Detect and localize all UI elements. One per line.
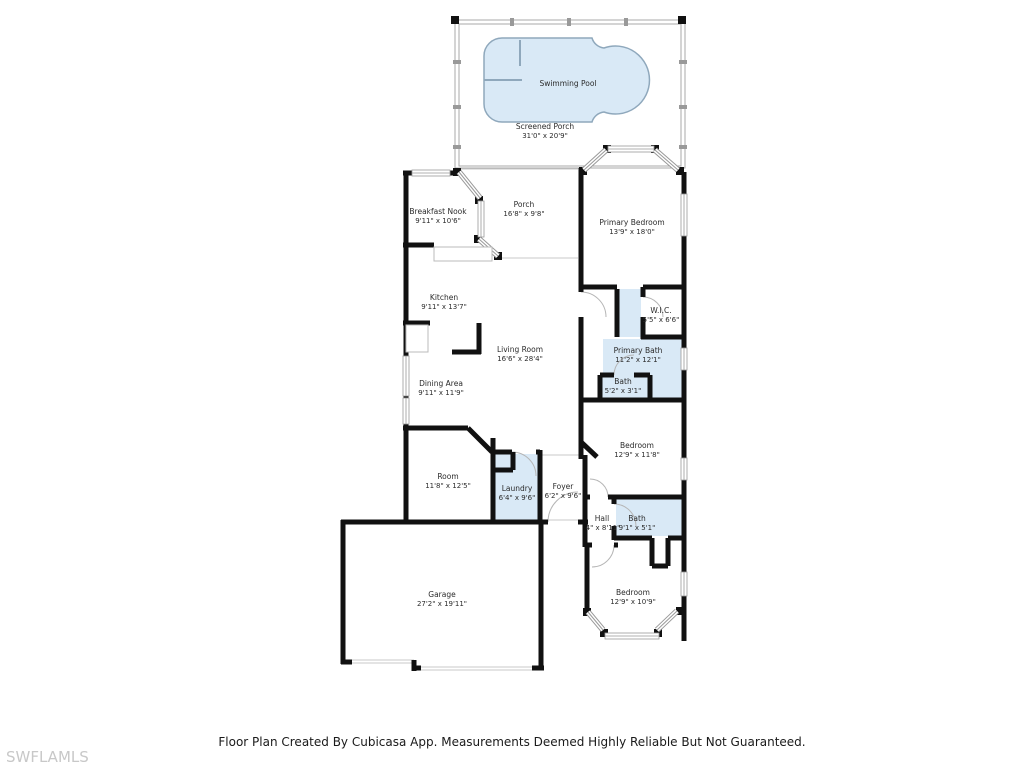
room-dims-breakfast-nook: 9'11" x 10'6" bbox=[415, 217, 461, 225]
open-boundaries bbox=[352, 169, 583, 670]
footer-disclaimer: Floor Plan Created By Cubicasa App. Meas… bbox=[218, 735, 805, 749]
room-dims-primary-bedroom: 13'9" x 18'0" bbox=[609, 228, 655, 236]
floor-plan-page: Swimming Pool Screened Porch 31'0" x 20'… bbox=[0, 0, 1024, 768]
room-label-kitchen: Kitchen bbox=[430, 293, 458, 302]
room-dims-dining-area: 9'11" x 11'9" bbox=[418, 389, 464, 397]
room-dims-porch: 16'8" x 9'8" bbox=[503, 210, 544, 218]
room-label-swimming-pool: Swimming Pool bbox=[539, 79, 596, 88]
room-dims-wic: 5'5" x 6'6" bbox=[643, 316, 680, 324]
room-label-hall-bath: Bath bbox=[628, 514, 646, 523]
room-label-dining-area: Dining Area bbox=[419, 379, 463, 388]
room-dims-bedroom-mid: 12'9" x 11'8" bbox=[614, 451, 660, 459]
room-label-garage: Garage bbox=[428, 590, 456, 599]
room-label-wic: W.I.C. bbox=[650, 306, 671, 315]
room-dims-foyer: 6'2" x 9'6" bbox=[545, 492, 582, 500]
room-label-bath-small: Bath bbox=[614, 377, 632, 386]
room-dims-garage: 27'2" x 19'11" bbox=[417, 600, 467, 608]
room-label-foyer: Foyer bbox=[553, 482, 575, 491]
room-dims-hall-bath: 9'1" x 5'1" bbox=[619, 524, 656, 532]
room-label-porch: Porch bbox=[514, 200, 535, 209]
floor-plan-svg: Swimming Pool Screened Porch 31'0" x 20'… bbox=[0, 0, 1024, 768]
room-label-screened-porch: Screened Porch bbox=[516, 122, 574, 131]
room-dims-screened-porch: 31'0" x 20'9" bbox=[522, 132, 568, 140]
room-dims-bedroom-bottom: 12'9" x 10'9" bbox=[610, 598, 656, 606]
room-label-bedroom-bottom: Bedroom bbox=[616, 588, 650, 597]
primary-hall-floor bbox=[619, 289, 641, 337]
room-label-room: Room bbox=[437, 472, 458, 481]
room-label-breakfast-nook: Breakfast Nook bbox=[409, 207, 467, 216]
watermark: SWFLAMLS bbox=[6, 748, 89, 766]
room-dims-bath-small: 5'2" x 3'1" bbox=[605, 387, 642, 395]
room-dims-primary-bath: 11'2" x 12'1" bbox=[615, 356, 661, 364]
room-dims-room: 11'8" x 12'5" bbox=[425, 482, 471, 490]
room-label-laundry: Laundry bbox=[502, 484, 533, 493]
room-label-hall: Hall bbox=[595, 514, 609, 523]
room-dims-laundry: 6'4" x 9'6" bbox=[499, 494, 536, 502]
room-label-primary-bedroom: Primary Bedroom bbox=[599, 218, 664, 227]
room-label-living-room: Living Room bbox=[497, 345, 543, 354]
room-dims-kitchen: 9'11" x 13'7" bbox=[421, 303, 467, 311]
room-label-bedroom-mid: Bedroom bbox=[620, 441, 654, 450]
room-dims-hall: 4" x 8'11" bbox=[586, 524, 621, 532]
room-dims-living-room: 16'6" x 28'4" bbox=[497, 355, 543, 363]
room-label-primary-bath: Primary Bath bbox=[614, 346, 663, 355]
